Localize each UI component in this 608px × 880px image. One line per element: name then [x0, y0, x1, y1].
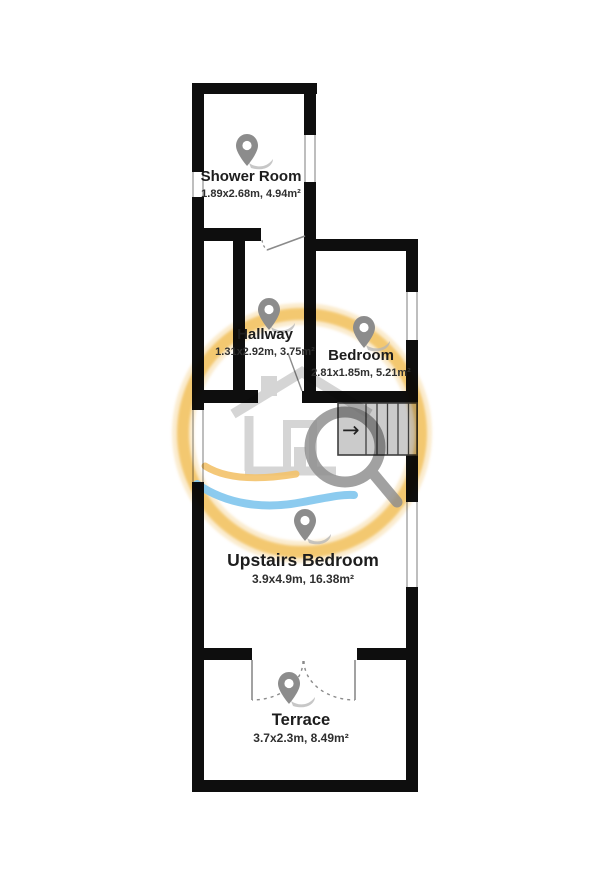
magnifier-icon [310, 412, 397, 502]
room-name: Hallway [215, 327, 315, 344]
room-dimensions: 3.9x4.9m, 16.38m² [227, 572, 379, 586]
floorplan-page: → [0, 0, 608, 880]
room-dimensions: 3.7x2.3m, 8.49m² [253, 731, 348, 745]
room-label-terrace: Terrace 3.7x2.3m, 8.49m² [253, 711, 348, 745]
room-dimensions: 1.89x2.68m, 4.94m² [201, 188, 302, 200]
agency-watermark-logo [0, 0, 608, 880]
room-label-bedroom: Bedroom 2.81x1.85m, 5.21m² [311, 348, 411, 379]
room-dimensions: 1.31x2.92m, 3.75m² [215, 346, 315, 358]
wave-blue-icon [197, 484, 354, 505]
room-name: Upstairs Bedroom [227, 551, 379, 570]
room-name: Bedroom [311, 348, 411, 365]
house-icon [233, 372, 370, 471]
room-dimensions: 2.81x1.85m, 5.21m² [311, 367, 411, 379]
location-pin-icon-shower-room [230, 132, 278, 172]
location-pin-icon-terrace [272, 670, 320, 710]
room-name: Terrace [253, 711, 348, 729]
room-name: Shower Room [201, 169, 302, 186]
room-label-shower-room: Shower Room 1.89x2.68m, 4.94m² [201, 169, 302, 200]
room-label-hallway: Hallway 1.31x2.92m, 3.75m² [215, 327, 315, 358]
location-pin-icon-upstairs-bedroom [288, 507, 336, 547]
room-label-upstairs-bedroom: Upstairs Bedroom 3.9x4.9m, 16.38m² [227, 551, 379, 586]
